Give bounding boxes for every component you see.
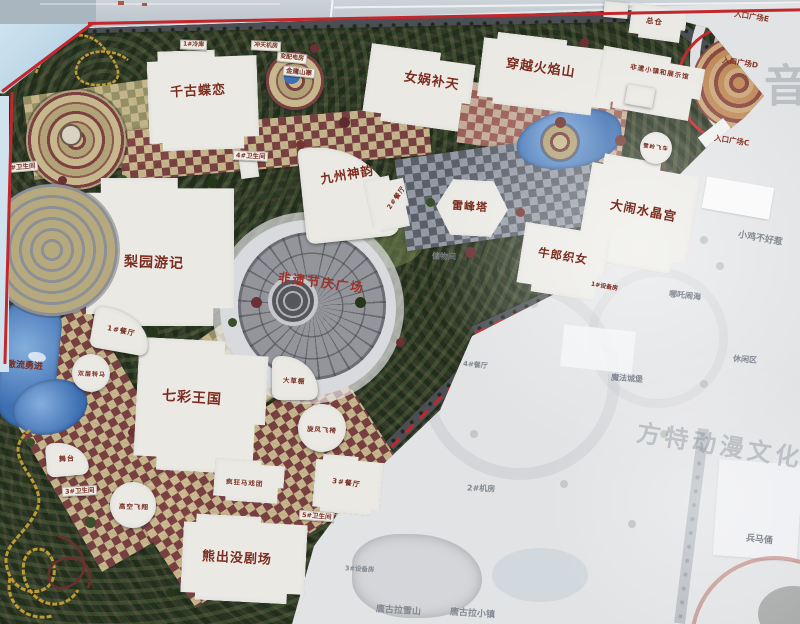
shebeifang-3: 3#设备房 <box>345 562 375 574</box>
wutai-label: 舞台 <box>59 453 76 464</box>
leifengta-label: 雷峰塔 <box>451 197 488 215</box>
niulang-zhinv-label: 牛郎织女 <box>537 244 589 268</box>
shuangceng-zhuanma-label: 双层转马 <box>78 368 106 378</box>
canting-3-label: 3#餐厅 <box>331 476 361 490</box>
weishengjian-4: 4#卫生间 <box>233 150 269 162</box>
nvwa-butian-label: 女娲补天 <box>403 66 461 94</box>
watermark-fangte-anime-park: 方特动漫文化科 <box>634 413 800 478</box>
jifang-2: 2#机房 <box>467 483 496 495</box>
tanggula-xiaozhen: 唐古拉小镇 <box>450 604 496 620</box>
weishengjian-3: 3#卫生间 <box>62 485 98 497</box>
canting-1-label: 1#餐厅 <box>106 323 136 339</box>
zongcang-label: 总仓 <box>645 15 663 28</box>
xiuxianqu: 休闲区 <box>733 353 758 366</box>
theme-park-map-photo: 千古蝶恋女娲补天穿越火焰山总仓九州神韵2#餐厅雷峰塔大闹水晶宫牛郎织女梨园游记七… <box>0 0 800 624</box>
labels-layer: 千古蝶恋女娲补天穿越火焰山总仓九州神韵2#餐厅雷峰塔大闹水晶宫牛郎织女梨园游记七… <box>0 0 800 624</box>
xiongchumo-juchang-label: 熊出没剧场 <box>202 545 273 568</box>
qicai-wangguo-label: 七彩王国 <box>161 385 222 409</box>
gaokong-feixiang-label: 高空飞翔 <box>119 500 149 511</box>
bingmayong: 兵马俑 <box>745 531 773 547</box>
xiaoji-buhaore: 小鸡不好惹 <box>737 227 784 248</box>
shebeifang-1: 1#设备房 <box>590 279 618 293</box>
nezha-naohai: 哪吒闹海 <box>669 288 702 302</box>
xueling-feiche-label: 雪岭飞车 <box>643 141 670 153</box>
jinying-shanzhai: 金鹰山寨 <box>283 65 316 79</box>
jiliu-yongjin: 激流勇进 <box>7 357 44 372</box>
chuanyue-huoyanshan-label: 穿越火焰山 <box>505 52 577 81</box>
qiangu-dielian-label: 千古蝶恋 <box>170 79 227 101</box>
bianpeidianfang: 变配电房 <box>277 51 308 64</box>
fengkuang-maxituan-label: 疯狂马戏团 <box>226 476 264 489</box>
rukou-guangchang-d: 入口广场D <box>721 54 759 71</box>
jiuzhou-shenyun-label: 九州神韵 <box>319 159 375 187</box>
danao-shuijinggong-label: 大闹水晶宫 <box>609 194 679 226</box>
weishengjian-5: 5#卫生间 <box>299 510 335 523</box>
tanggula-xueshan: 唐古拉雪山 <box>376 601 422 617</box>
mofa-chengbao: 魔法城堡 <box>611 372 644 385</box>
dacaopeng-label: 大草棚 <box>283 374 306 386</box>
xuanfeng-feiyi-label: 旋风飞椅 <box>307 423 338 435</box>
rukou-guangchang-c: 入口广场C <box>713 132 750 148</box>
feiyi-xiaozhen-label: 非遗小镇和展示馆 <box>630 61 691 81</box>
feiyi-jieqing-guangchang: 非遗节庆广场 <box>277 267 366 296</box>
canting-2-label: 2#餐厅 <box>384 183 408 211</box>
lengku-1: 1#冷库 <box>180 40 208 51</box>
watermark-yin: 音 <box>764 50 800 114</box>
canting-4: 4#餐厅 <box>463 359 489 372</box>
chongtian-jifang: 冲天机房 <box>251 40 281 51</box>
chuwujian: 储物间 <box>432 251 456 263</box>
liyuan-youji-label: 梨园游记 <box>124 251 185 273</box>
